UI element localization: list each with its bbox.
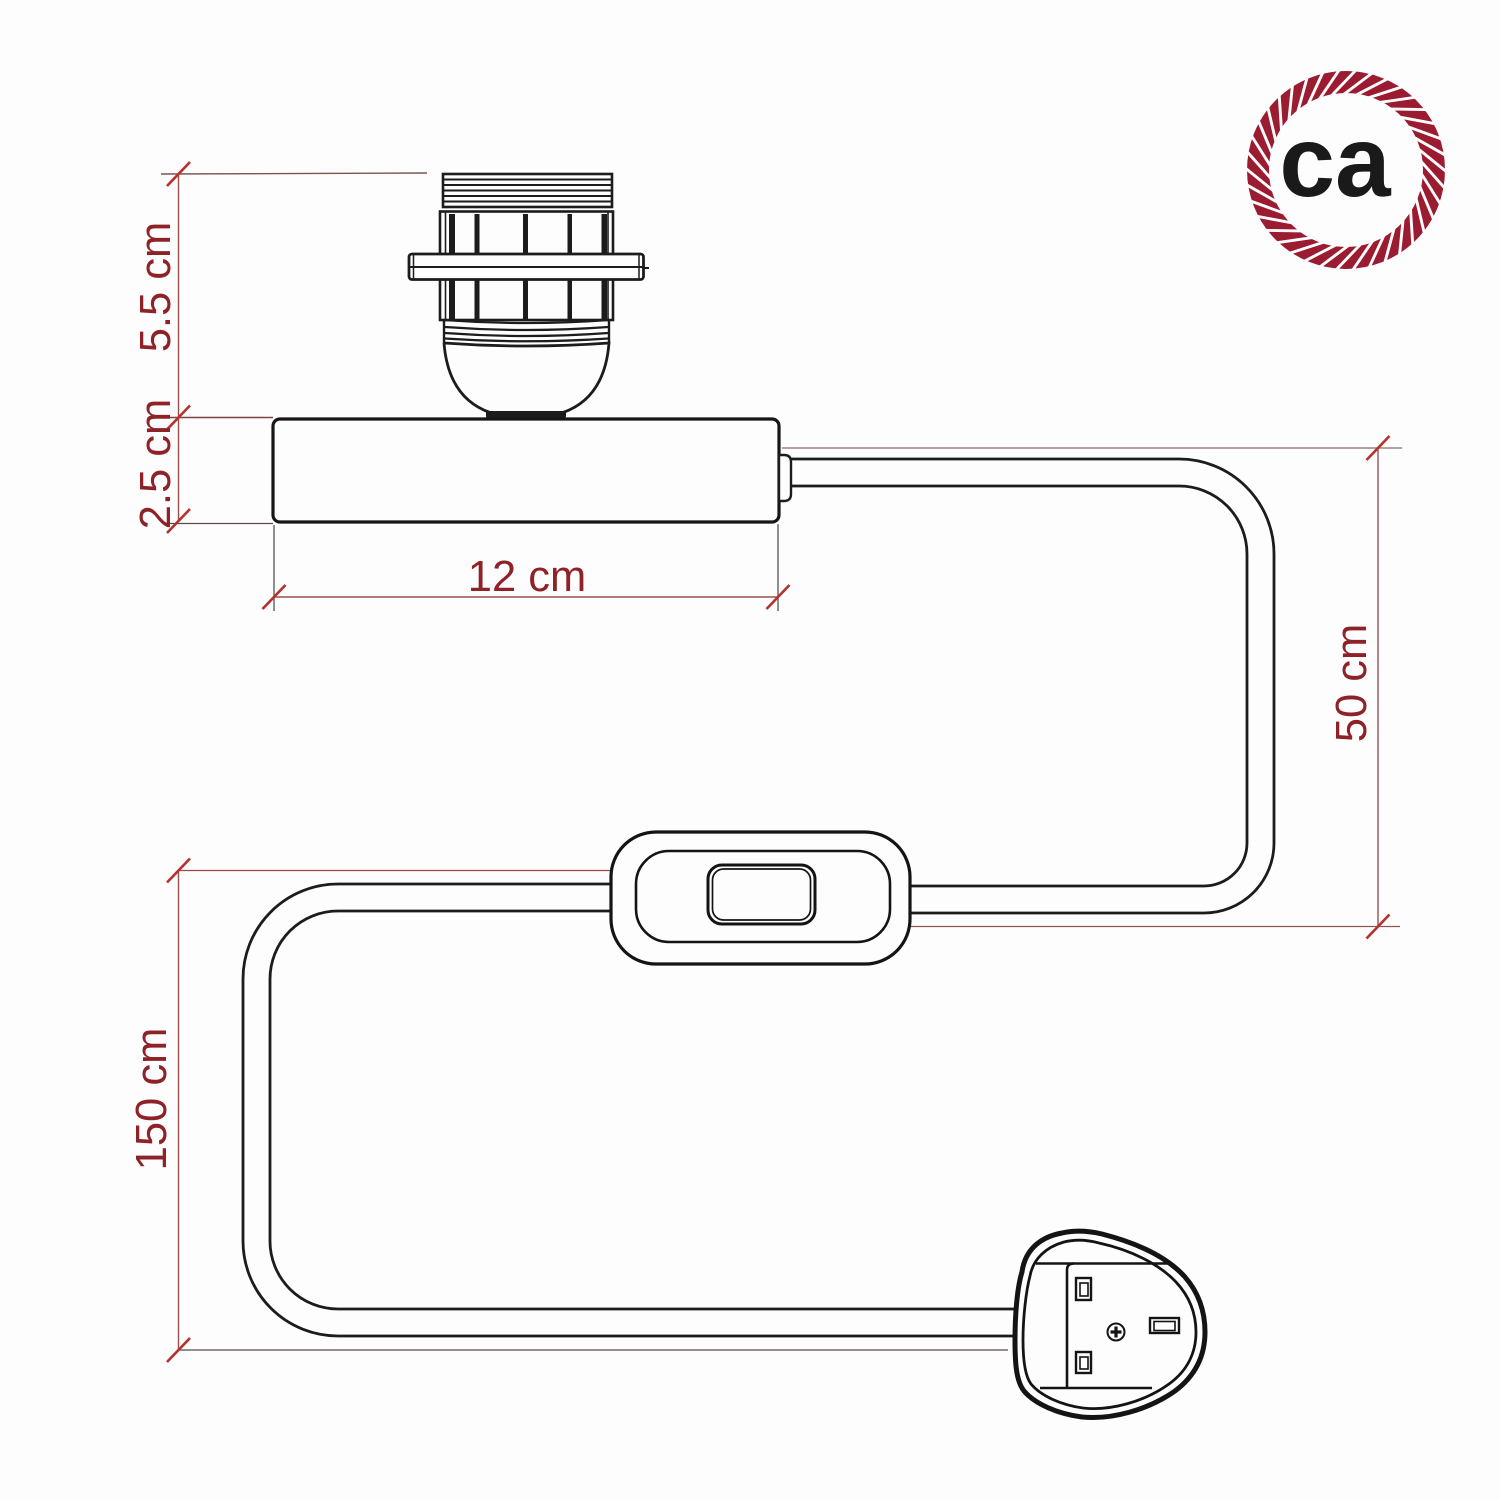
svg-text:5.5 cm: 5.5 cm (132, 222, 180, 353)
svg-text:12 cm: 12 cm (468, 553, 586, 601)
svg-text:150 cm: 150 cm (128, 1028, 176, 1171)
svg-text:ca: ca (1279, 106, 1392, 218)
svg-text:50 cm: 50 cm (1328, 624, 1376, 742)
svg-text:2.5 cm: 2.5 cm (132, 399, 180, 530)
